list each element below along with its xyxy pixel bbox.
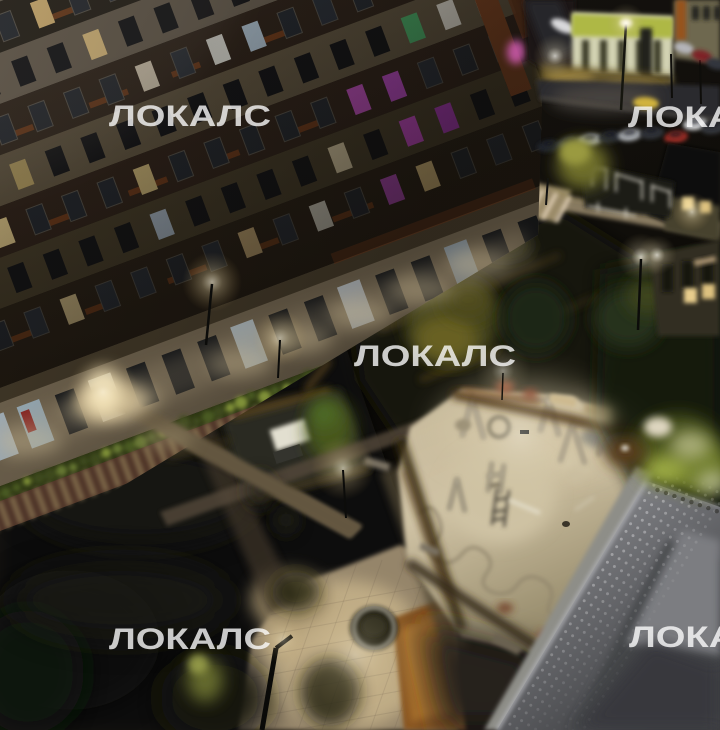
svg-text:ЛОКАЛС: ЛОКАЛС [354,340,516,373]
svg-text:ЛОКАЛС: ЛОКАЛС [628,101,720,134]
svg-text:ЛОКАЛС: ЛОКАЛС [629,621,720,654]
svg-text:ЛОКАЛС: ЛОКАЛС [109,623,271,656]
svg-text:ЛОКАЛС: ЛОКАЛС [109,100,271,133]
